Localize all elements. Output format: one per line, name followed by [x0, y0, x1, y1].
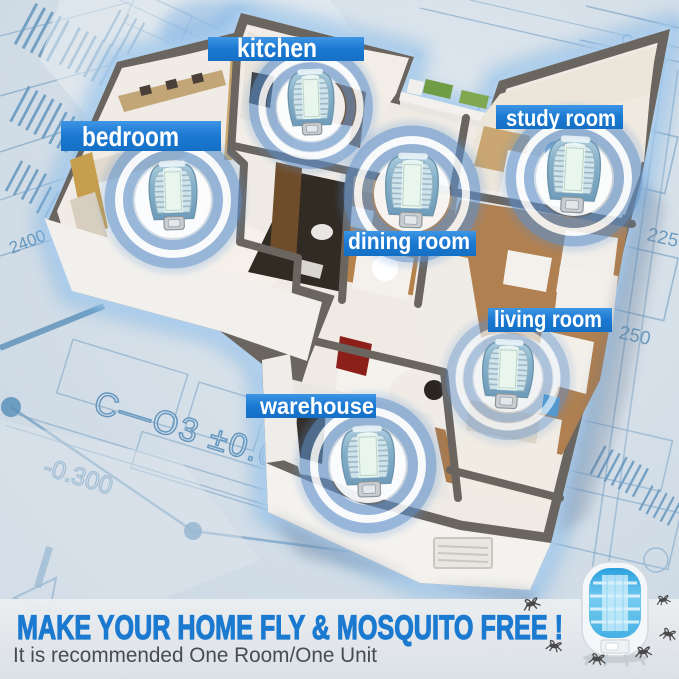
svg-text:study room: study room [506, 105, 616, 131]
svg-text:dining room: dining room [348, 228, 470, 254]
svg-text:warehouse: warehouse [259, 393, 374, 419]
svg-text:MAKE YOUR HOME FLY & MOSQUITO: MAKE YOUR HOME FLY & MOSQUITO FREE ! [17, 609, 563, 647]
svg-text:bedroom: bedroom [82, 121, 179, 152]
svg-text:It is recommended One Room/One: It is recommended One Room/One Unit [13, 644, 377, 667]
svg-text:living room: living room [494, 306, 602, 332]
svg-text:kitchen: kitchen [237, 33, 317, 63]
